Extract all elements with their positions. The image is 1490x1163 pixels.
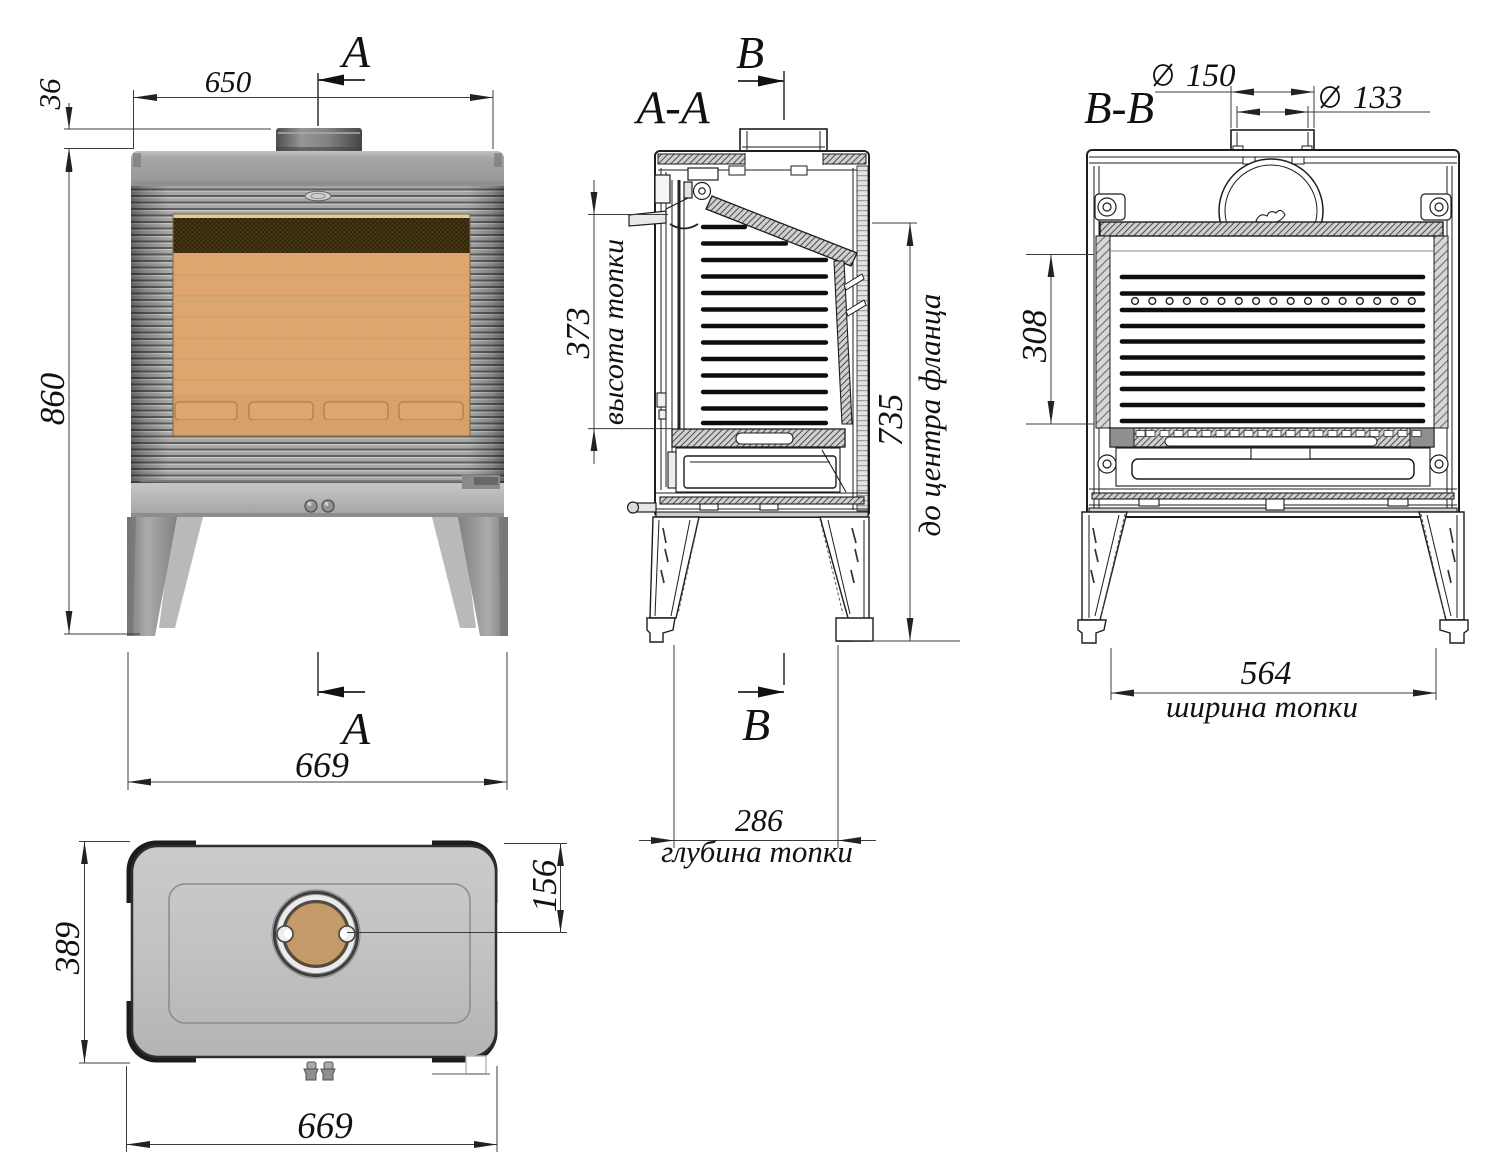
svg-text:564: 564 [1241, 655, 1292, 692]
svg-text:B: B [742, 699, 770, 750]
svg-text:A-A: A-A [633, 82, 709, 134]
svg-text:до центра фланца: до центра фланца [912, 294, 947, 537]
svg-text:650: 650 [205, 64, 252, 99]
svg-text:B-B: B-B [1084, 83, 1154, 133]
svg-text:B: B [736, 27, 764, 78]
svg-text:A: A [339, 26, 371, 77]
svg-text:150: 150 [1186, 58, 1236, 94]
svg-text:36: 36 [32, 78, 67, 111]
svg-text:высота топки: высота топки [597, 239, 630, 425]
svg-text:373: 373 [560, 308, 597, 360]
svg-text:глубина топки: глубина топки [661, 834, 853, 869]
svg-text:669: 669 [297, 1106, 353, 1147]
svg-text:133: 133 [1353, 80, 1403, 116]
svg-text:389: 389 [48, 922, 87, 976]
svg-text:ширина топки: ширина топки [1166, 689, 1358, 724]
svg-text:286: 286 [735, 802, 783, 838]
svg-text:308: 308 [1015, 309, 1054, 363]
svg-text:156: 156 [525, 859, 564, 912]
svg-text:735: 735 [871, 394, 910, 447]
svg-text:669: 669 [295, 745, 349, 785]
svg-text:860: 860 [33, 372, 72, 425]
